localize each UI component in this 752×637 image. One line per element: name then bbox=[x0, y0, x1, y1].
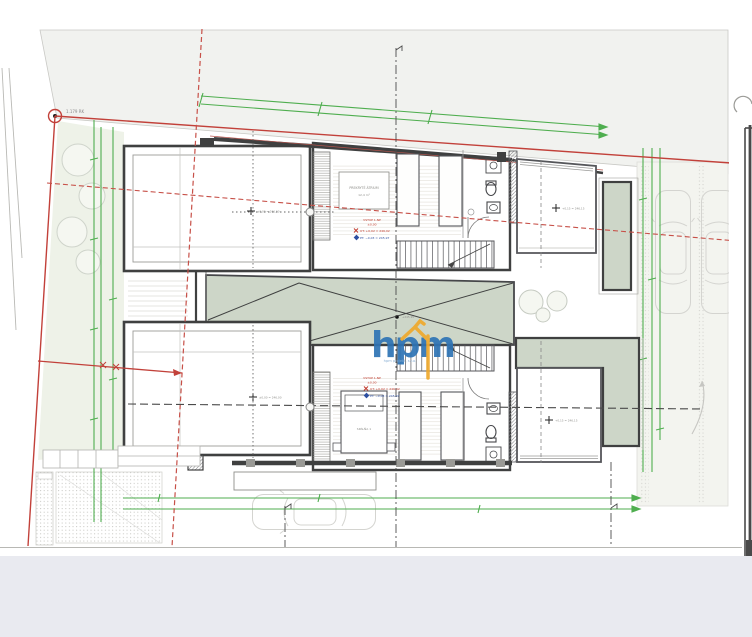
toilet bbox=[486, 426, 496, 439]
room-label: PREKRYTÉ ÁTRIUM bbox=[349, 185, 379, 190]
svg-text:±0,00: ±0,00 bbox=[367, 381, 376, 385]
wardrobe bbox=[397, 154, 419, 226]
parking-area bbox=[637, 162, 728, 506]
svg-text:PT: −0,03 = 245,97: PT: −0,03 = 245,97 bbox=[370, 394, 399, 398]
level-label: ±0,00 = 246,00 bbox=[259, 396, 282, 400]
room-label-area: 12,4 m² bbox=[358, 193, 371, 197]
plan-screenshot: +245,95 PREKRYTÉ ÁTRIUM 12,4 m² bbox=[0, 0, 752, 637]
svg-text:PT: −0,03 = 245,97: PT: −0,03 = 245,97 bbox=[360, 236, 389, 240]
room-label-box bbox=[339, 172, 389, 209]
floor-plan-canvas: +245,95 PREKRYTÉ ÁTRIUM 12,4 m² bbox=[0, 0, 752, 637]
svg-text:UT: +0,02 = 246,02: UT: +0,02 = 246,02 bbox=[360, 229, 390, 233]
stairs-upper bbox=[397, 241, 494, 268]
svg-text:VSTUP 1.NP: VSTUP 1.NP bbox=[363, 376, 381, 380]
level-label: +0,15 = 246,15 bbox=[555, 419, 578, 423]
footer-strip bbox=[0, 556, 752, 637]
wardrobe bbox=[441, 392, 464, 460]
parking-hatch-strip bbox=[697, 166, 705, 504]
wardrobe bbox=[399, 392, 421, 460]
spot-level-label: +245,95 bbox=[402, 315, 414, 319]
upper-terrace bbox=[603, 182, 631, 290]
level-label: +0,15 = 246,15 bbox=[562, 207, 585, 211]
wardrobe bbox=[439, 156, 462, 226]
bed bbox=[333, 391, 395, 453]
lower-left-room bbox=[124, 322, 310, 455]
svg-text:VSTUP 1.NP: VSTUP 1.NP bbox=[363, 218, 381, 222]
svg-text:±0,00: ±0,00 bbox=[367, 223, 376, 227]
svg-text:UT: +0,02 = 246,02: UT: +0,02 = 246,02 bbox=[370, 387, 400, 391]
lower-right-room bbox=[517, 368, 601, 462]
hpm-tagline: hpm projekt, s.r.o. bbox=[384, 359, 417, 363]
upper-left-room bbox=[124, 146, 310, 271]
toilet bbox=[486, 183, 496, 196]
level-label: ±0,00 = 246,00 bbox=[257, 210, 280, 214]
parking-hatch-strip bbox=[641, 166, 649, 504]
bed-label: SPÁLŇA 1 bbox=[357, 426, 371, 431]
survey-point-label: 1.179 RK bbox=[66, 109, 85, 114]
